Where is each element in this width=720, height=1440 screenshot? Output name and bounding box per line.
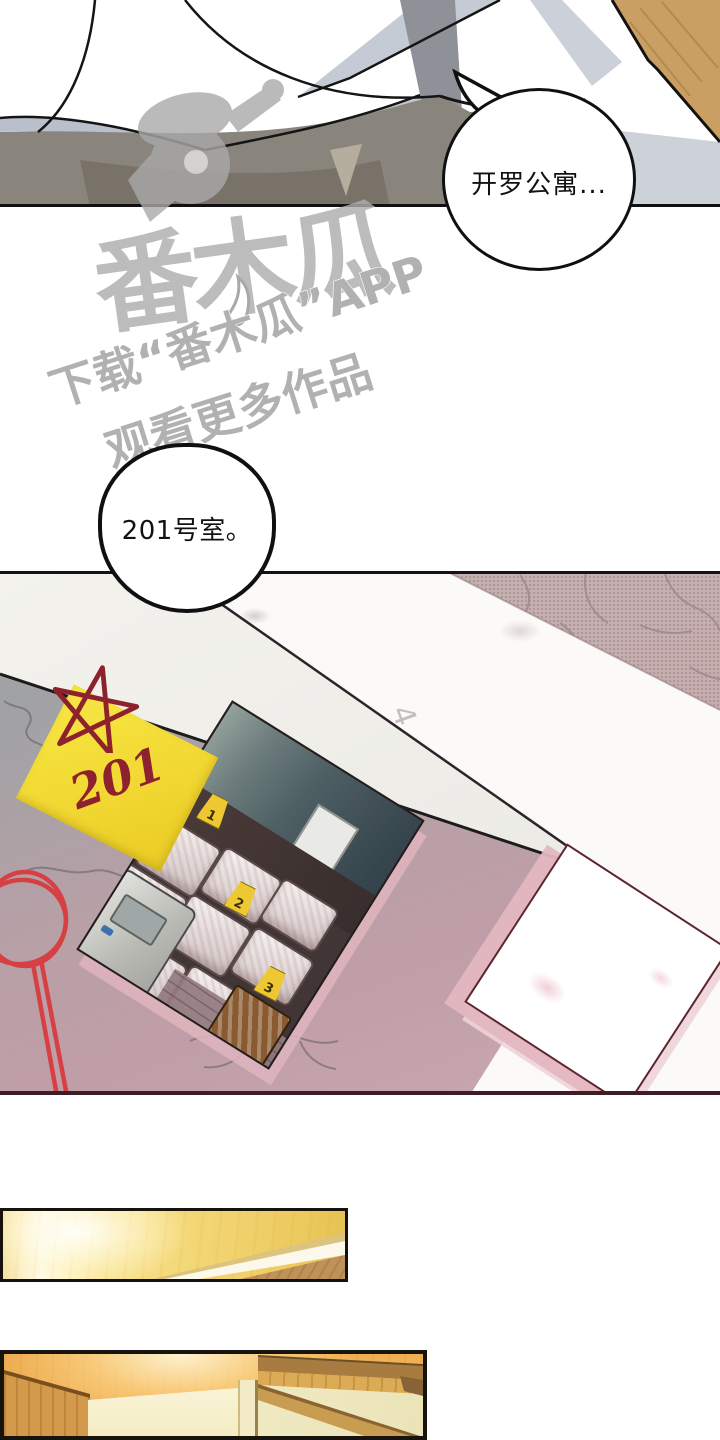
marker-3-number: 3 bbox=[261, 980, 276, 997]
panel-2-top-border bbox=[0, 571, 720, 574]
speech-bubble-2: 201号室。 bbox=[98, 443, 276, 613]
watermark-logo: 番木瓜 bbox=[87, 187, 401, 350]
bubble-1-text: 开罗公寓... bbox=[471, 158, 607, 201]
comic-page: 番木瓜 下载“番木瓜”APP 观看更多作品 开罗公寓... 201号室。 bbox=[0, 0, 720, 1440]
wood-door-frame bbox=[612, 0, 720, 142]
door-frame-strip bbox=[238, 1380, 258, 1440]
panel-2-bottom-border bbox=[0, 1091, 720, 1095]
scale-screen bbox=[109, 893, 168, 947]
marker-1-number: 1 bbox=[204, 807, 219, 824]
watermark-tagline-1: 下载“番木瓜”APP bbox=[43, 245, 434, 418]
marker-2-number: 2 bbox=[231, 895, 246, 912]
panel-hallway-doorway bbox=[0, 1350, 427, 1440]
panel-ceiling-light bbox=[0, 1208, 348, 1282]
star-doodle-icon bbox=[44, 661, 144, 753]
red-circle-doodle-icon bbox=[0, 864, 105, 1095]
speech-bubble-1: 开罗公寓... bbox=[442, 88, 636, 271]
panel-evidence-scene: 4 1 bbox=[0, 571, 720, 1095]
bubble-2-text: 201号室。 bbox=[122, 510, 253, 547]
paper-hint-number: 4 bbox=[384, 701, 423, 731]
papaya-seed-icon bbox=[228, 277, 249, 325]
